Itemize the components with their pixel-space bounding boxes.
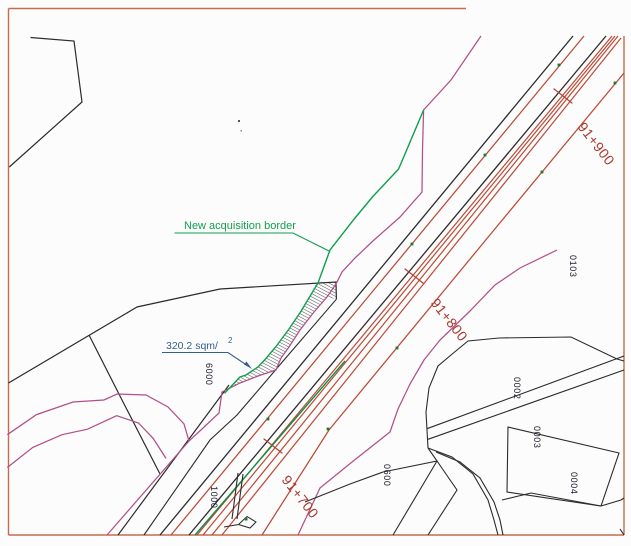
- svg-text:0002: 0002: [512, 377, 522, 399]
- svg-text:1000: 1000: [209, 486, 219, 508]
- svg-text:0004: 0004: [569, 472, 579, 494]
- svg-text:0003: 0003: [532, 426, 542, 448]
- svg-text:2: 2: [228, 336, 233, 345]
- svg-text:0103: 0103: [568, 255, 578, 277]
- svg-text:0600: 0600: [382, 464, 392, 486]
- svg-text:320.2 sqm/: 320.2 sqm/: [166, 340, 218, 352]
- svg-text:6000: 6000: [204, 363, 214, 385]
- svg-text:New acquisition border: New acquisition border: [184, 220, 296, 232]
